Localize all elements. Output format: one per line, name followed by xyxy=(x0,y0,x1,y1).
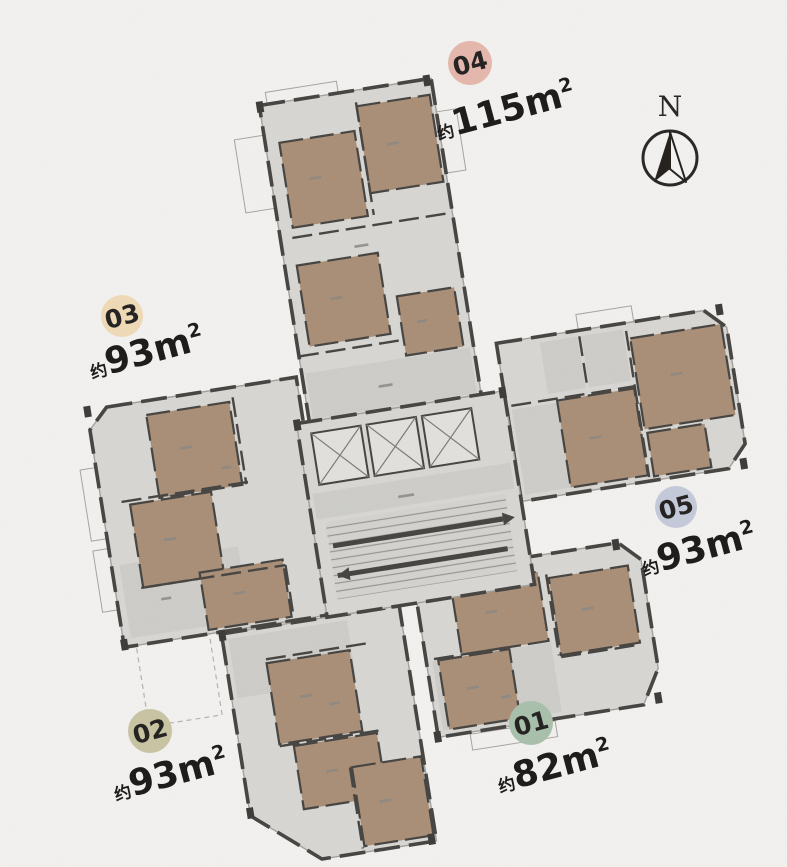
floor-plan-page: N 04 约115m2 03 约93m2 05 约93m2 01 约82m2 0… xyxy=(0,0,787,867)
north-label: N xyxy=(658,90,683,123)
floor-plan-canvas: N 04 约115m2 03 约93m2 05 约93m2 01 约82m2 0… xyxy=(0,0,787,867)
